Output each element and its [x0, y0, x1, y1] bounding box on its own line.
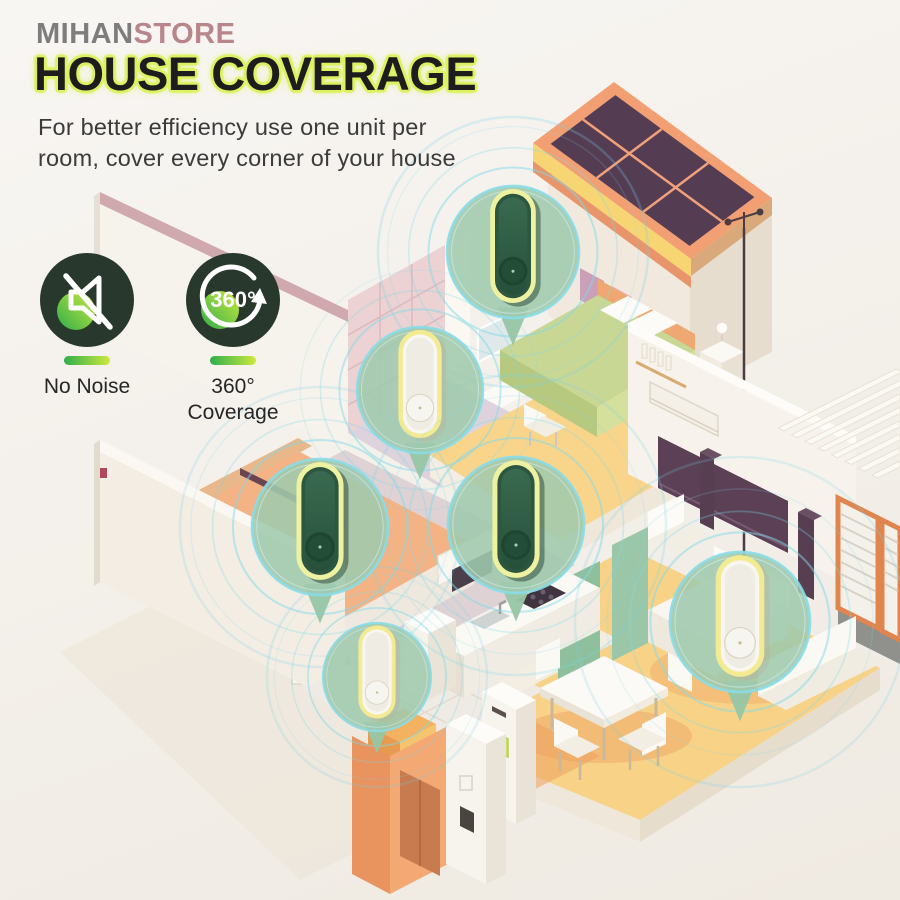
- feature-label: 360° Coverage: [158, 374, 308, 427]
- muted-speaker-icon: [37, 250, 137, 350]
- feature-label: No Noise: [12, 374, 162, 400]
- gradient-divider: [64, 356, 110, 365]
- subtitle-line-1: For better efficiency use one unit per: [38, 114, 427, 140]
- page: MIHANSTORE HOUSE COVERAGE For better eff…: [0, 0, 900, 900]
- gradient-divider: [210, 356, 256, 365]
- lamp: [716, 322, 728, 334]
- subtitle-line-2: room, cover every corner of your house: [38, 145, 456, 171]
- rotation-360-icon: 360°: [183, 250, 283, 350]
- svg-text:360°: 360°: [210, 287, 256, 312]
- feature-no-noise: No Noise: [12, 250, 162, 400]
- feature-360-coverage: 360° 360° Coverage: [158, 250, 308, 427]
- feature-badges: No Noise 360° 360° Coverage: [0, 250, 320, 430]
- page-subtitle: For better efficiency use one unit per r…: [38, 112, 456, 175]
- page-title: HOUSE COVERAGE: [34, 46, 476, 101]
